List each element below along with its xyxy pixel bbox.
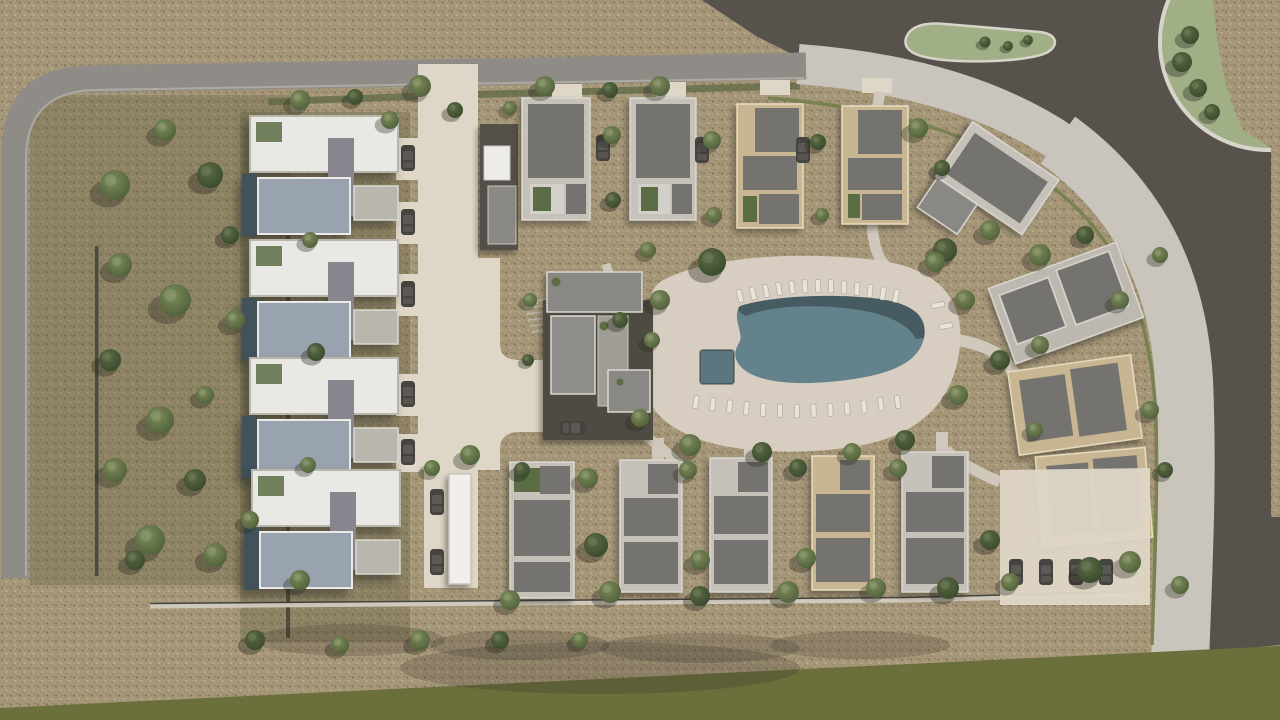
parked-car: [560, 421, 586, 435]
sun-lounger: [815, 279, 821, 292]
south-villa-3: [710, 458, 772, 592]
sun-lounger: [727, 400, 733, 413]
far-bank-strip: [1271, 112, 1280, 517]
south-villa-4: [812, 456, 874, 590]
north-villa-2: [630, 98, 696, 220]
parked-car: [430, 549, 444, 575]
north-villa-3: [737, 104, 803, 228]
clubhouse-roof-south: [608, 370, 650, 412]
parked-car: [401, 209, 415, 235]
field-hedgerow: [95, 246, 99, 576]
sun-lounger: [794, 404, 799, 417]
sun-lounger: [802, 280, 808, 293]
sun-lounger: [844, 402, 850, 415]
sun-lounger: [828, 403, 834, 416]
tree-shadow: [770, 631, 950, 659]
sun-lounger: [710, 398, 716, 411]
clubhouse-roof-west: [551, 316, 595, 394]
sun-lounger: [841, 281, 846, 294]
north-villa-1: [522, 98, 590, 220]
site-plan-render: [0, 0, 1280, 720]
parked-car: [401, 439, 415, 465]
parked-car: [401, 381, 415, 407]
parked-car: [401, 281, 415, 307]
carport-building: [449, 474, 471, 584]
south-villa-5: [902, 452, 968, 592]
south-villa-1: [510, 462, 574, 598]
sun-lounger: [861, 400, 867, 413]
sun-lounger: [811, 404, 816, 417]
tree-shadow: [400, 642, 800, 694]
garage-court: [480, 124, 518, 250]
north-villa-4: [842, 106, 908, 224]
parked-car: [401, 145, 415, 171]
sun-lounger: [828, 280, 833, 293]
sun-lounger: [854, 282, 860, 295]
sun-lounger: [760, 403, 766, 416]
site-plan-svg: [0, 0, 1280, 720]
south-villa-2: [620, 460, 682, 592]
sun-lounger: [867, 284, 873, 297]
parked-car: [1039, 559, 1053, 585]
sun-lounger: [777, 404, 782, 417]
sun-lounger: [743, 402, 749, 415]
kids-pool: [700, 350, 734, 384]
clubhouse-roof-north: [547, 272, 642, 312]
parked-car: [430, 489, 444, 515]
